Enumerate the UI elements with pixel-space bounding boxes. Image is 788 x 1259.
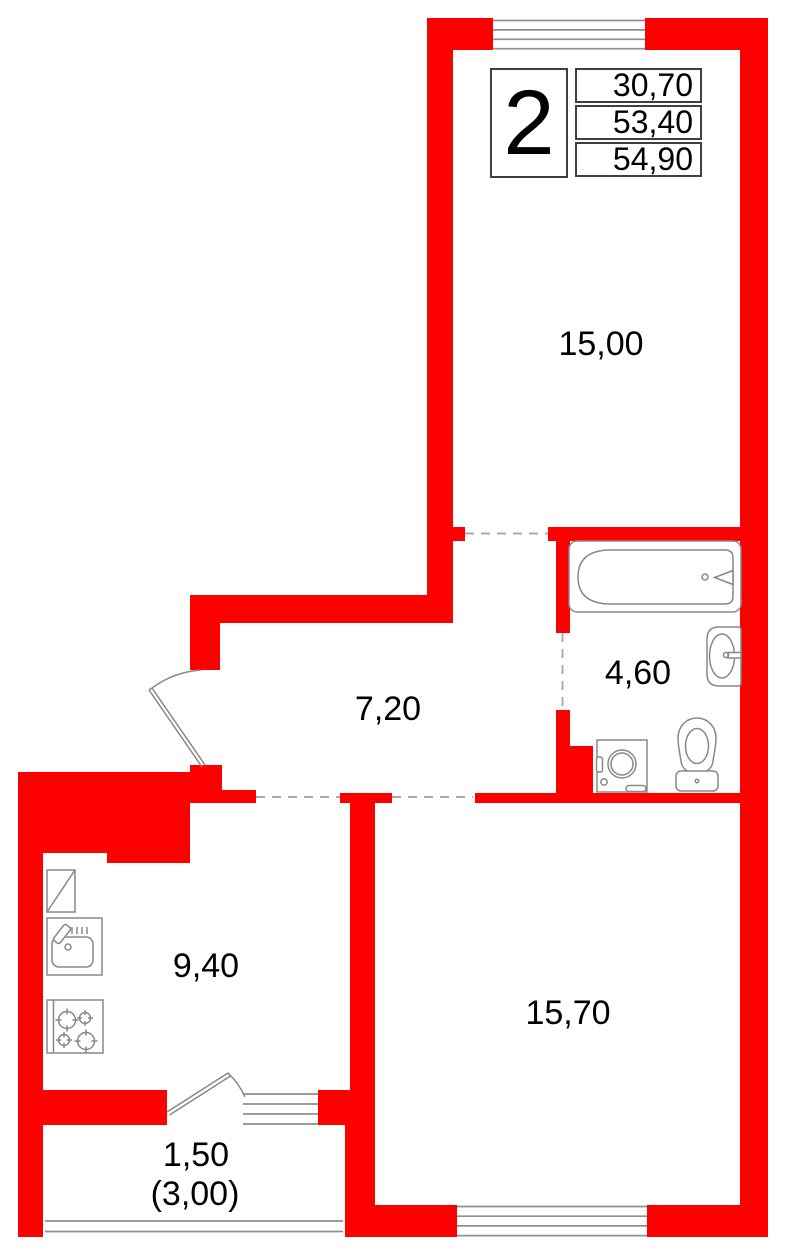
- flat-number-cell: 2: [490, 68, 568, 178]
- wall-segment: [18, 853, 43, 1237]
- wall-segment: [43, 1090, 167, 1125]
- toilet: [676, 718, 718, 791]
- washing-machine: [597, 740, 648, 792]
- balcony-railing: [45, 1221, 343, 1232]
- wall-segment: [475, 793, 740, 803]
- hall-door: [149, 670, 205, 767]
- wall-segment: [190, 623, 220, 670]
- room-label-bathroom: 4,60: [605, 656, 671, 692]
- wall-segment: [740, 18, 768, 1237]
- wall-segment: [556, 710, 570, 746]
- wash-basin: [707, 627, 741, 686]
- wall-segment: [427, 18, 453, 623]
- room-label-living: 15,00: [558, 327, 643, 363]
- wall-segment: [453, 527, 465, 541]
- wall-segment: [190, 595, 453, 623]
- floor-plan: 15,00 7,20 4,60 9,40 15,70 1,50 (3,00) 2…: [0, 0, 788, 1259]
- top-window: [493, 21, 645, 49]
- wall-segment: [556, 529, 570, 633]
- kitchen-sink: [47, 918, 102, 975]
- wall-segment: [340, 793, 392, 803]
- area-value-row: 53,40: [575, 105, 702, 140]
- kitchen-counter: [47, 870, 75, 912]
- bathtub: [569, 541, 741, 612]
- room-label-hallway: 7,20: [355, 692, 421, 728]
- wall-segment: [556, 746, 593, 795]
- wall-segment: [647, 1205, 768, 1237]
- wall-segment: [18, 772, 107, 853]
- wall-segment: [222, 790, 256, 803]
- wall-segment: [107, 772, 190, 863]
- stove: [47, 1000, 103, 1053]
- room-label-balcony-total: (3,00): [151, 1177, 240, 1213]
- balcony-door: [167, 1073, 245, 1115]
- wall-segment: [350, 1205, 457, 1237]
- room-label-balcony: 1,50: [163, 1138, 229, 1174]
- balcony-window: [243, 1094, 318, 1124]
- area-value-row: 30,70: [575, 68, 702, 103]
- area-value-row: 54,90: [575, 142, 702, 177]
- wall-segment: [548, 527, 742, 541]
- wall-segment: [190, 765, 222, 803]
- room-label-bedroom: 15,70: [525, 996, 610, 1032]
- room-label-kitchen: 9,40: [173, 949, 239, 985]
- bedroom-window: [457, 1207, 647, 1236]
